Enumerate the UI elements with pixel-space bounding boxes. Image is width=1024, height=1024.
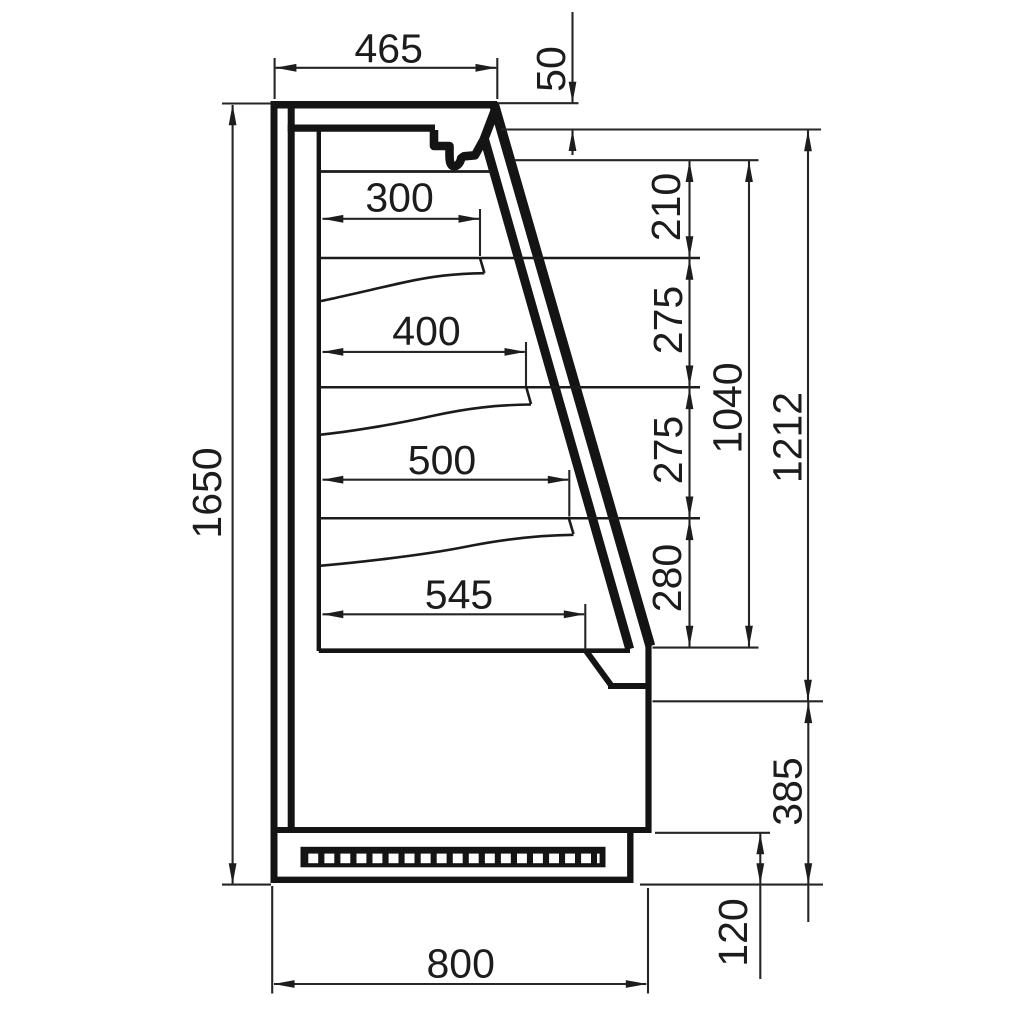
svg-text:385: 385 — [765, 757, 811, 825]
svg-text:500: 500 — [408, 437, 476, 483]
svg-text:1650: 1650 — [184, 447, 230, 538]
svg-text:120: 120 — [710, 898, 756, 966]
svg-text:800: 800 — [426, 941, 494, 987]
svg-text:300: 300 — [365, 175, 433, 221]
svg-text:545: 545 — [425, 572, 493, 618]
svg-text:275: 275 — [645, 286, 691, 354]
svg-text:50: 50 — [528, 46, 574, 92]
svg-text:465: 465 — [354, 26, 422, 72]
svg-text:210: 210 — [643, 173, 689, 241]
svg-text:1040: 1040 — [705, 362, 751, 453]
svg-text:275: 275 — [645, 416, 691, 484]
svg-text:400: 400 — [392, 308, 460, 354]
svg-text:280: 280 — [644, 544, 690, 612]
svg-text:1212: 1212 — [765, 392, 811, 483]
